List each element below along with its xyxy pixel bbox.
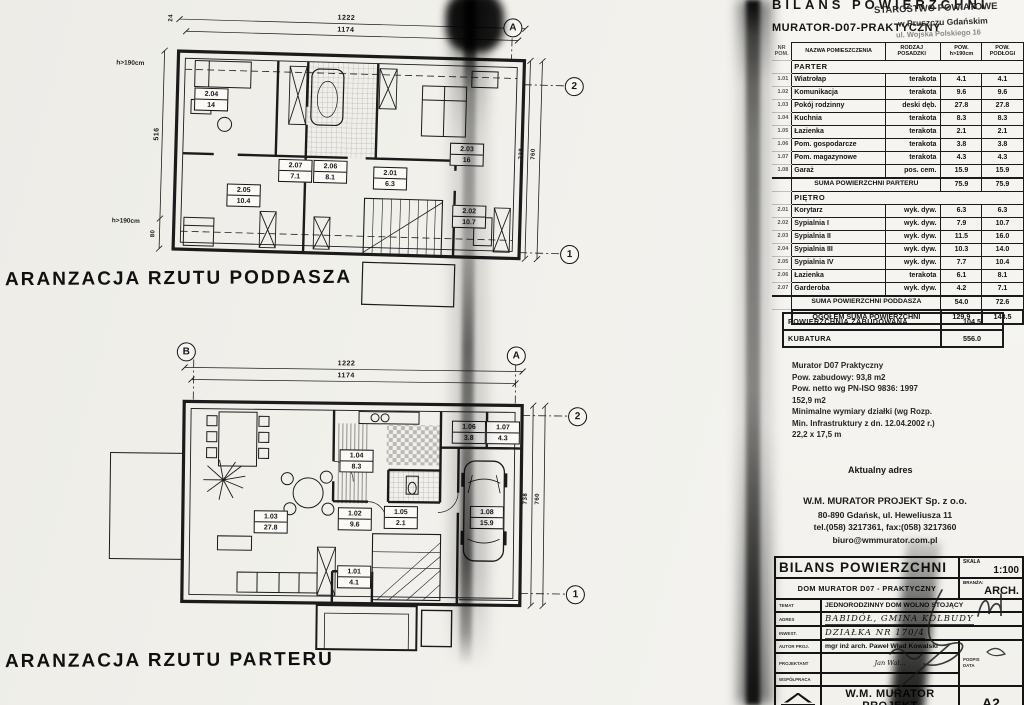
attic-knee-wall-label-bottom: h>190cm [112,217,140,225]
scale-cell: SKALA 1:100 [959,557,1023,578]
table-row: 1.04Kuchniaterakota8.38.3 [772,112,1023,125]
table-row: 2.04Sypialnia IIIwyk. dyw.10.314.0 [772,243,1023,256]
company-email: biuro@wmmurator.com.pl [770,534,1000,547]
autor-value: mgr inż arch. Paweł Wład Kowalski [821,640,959,653]
wspolpraca-label: WSPÓŁPRACA [775,673,821,686]
room-label-2-03: 2.03 16 [450,143,485,167]
table-row: 1.03Pokój rodzinnydeski dęb.27.827.8 [772,99,1023,112]
built-area-label: POWIERZCHNIA ZABUDOWANA [783,313,941,330]
project-specs: Murator D07 Praktyczny Pow. zabudowy: 93… [792,360,935,441]
attic-dim-height-right-outer: 760 [530,148,536,160]
spec-line: Pow. netto wg PN-ISO 9836: 1997 [792,383,935,395]
autor-label: AUTOR PROJ. [775,640,821,653]
titleblock-row-temat: TEMAT JEDNORODZINNY DOM WOLNO STOJĄCY [775,599,1023,612]
office-stamp-line2: w Pruszczu Gdańskim [898,15,988,28]
col-header-pow1: POW. h>190cm [941,43,982,61]
discipline-cell: BRANŻA: ARCH. [959,578,1023,599]
ground-dim-outer-width: 1222 [338,360,356,367]
signature-box: PODPIS DATA [959,640,1023,686]
room-label-1-04: 1.04 8.3 [339,449,373,472]
table-row: 1.08Garażpos. cem.15.915.9 [772,164,1023,178]
ground-grid-marker-2: 2 [568,407,587,426]
titleblock-row-project: DOM MURATOR D07 - PRAKTYCZNY BRANŻA: ARC… [775,578,1023,599]
suma-poddasze-row: SUMA POWIERZCHNI PODDASZA 54.0 72.6 [772,296,1023,310]
table-row: 2.07Garderobawyk. dyw.4.27.1 [772,282,1023,296]
company-cell: W.M. MURATOR PROJEKT Sp. z o.o. [821,686,959,705]
table-header-row: NR POM. NAZWA POMIESZCZENIA RODZAJ POSAD… [772,43,1023,61]
table-row: 1.02Komunikacjaterakota9.69.6 [772,86,1023,99]
attic-dim-height-right-inner: 738 [518,148,524,160]
spec-line: Min. Infrastruktury z dn. 12.04.2002 r.) [792,418,935,430]
col-header-pow2: POW. PODŁOGI [982,43,1023,61]
attic-dim-outer-width: 1222 [338,14,356,21]
table-row: 1.06Pom. gospodarczeterakota3.83.8 [772,138,1023,151]
ground-grid-marker-B: B [177,342,196,361]
spec-line: 22,2 x 17,5 m [792,429,935,441]
roof-icon [784,693,812,703]
titleblock-row-inwest: INWEST. DZIAŁKA NR 170/4 [775,626,1023,640]
room-label-1-05: 1.05 2.1 [384,506,418,529]
summary-table: POWIERZCHNIA ZABUDOWANA 104.5 KUBATURA 5… [782,312,1004,348]
room-label-1-06: 1.06 3.8 [452,421,486,444]
spec-line: 152,9 m2 [792,395,935,407]
ground-grid-marker-1: 1 [566,585,585,604]
attic-knee-wall-label-top: h>190cm [116,59,144,67]
area-balance-panel: BILANS POWIERZCHNI MURATOR-D07-PRAKTYCZN… [770,0,1024,705]
attic-dim-height-left2: 80 [150,229,156,237]
ground-dim-height-right-outer: 760 [535,493,541,505]
col-header-nazwa: NAZWA POMIESZCZENIA [792,43,886,61]
col-header-nr: NR POM. [772,43,792,61]
volume-label: KUBATURA [783,330,941,347]
company-name: W.M. MURATOR PROJEKT Sp. z o.o. [770,496,1000,509]
scan-crease-panel-edge [746,0,760,705]
room-label-2-05: 2.05 10.4 [226,183,261,207]
room-label-1-03: 1.03 27.8 [254,510,288,533]
room-label-1-07: 1.07 4.3 [486,421,520,444]
table-row: 1.07Pom. magazynoweterakota4.34.3 [772,151,1023,164]
company-address-block: W.M. MURATOR PROJEKT Sp. z o.o. 80-890 G… [770,496,1000,546]
adres-value: BABIDÓŁ, GMINA KOLBUDY [821,612,1023,626]
ground-floor-plan: 1222 1174 738 760 B A 2 1 1.06 3.8 1.07 … [66,338,610,685]
spec-line: Murator D07 Praktyczny [792,360,935,372]
adres-label: ADRES [775,612,821,626]
volume-row: KUBATURA 556.0 [783,330,1003,347]
volume-value: 556.0 [941,330,1003,347]
titleblock-row-company: murator W.M. MURATOR PROJEKT Sp. z o.o. … [775,686,1023,705]
room-label-2-02: 2.02 10.7 [452,205,487,229]
table-row: 2.05Sypialnia IVwyk. dyw.7.710.4 [772,256,1023,269]
inwest-value: DZIAŁKA NR 170/4 [821,626,1023,640]
table-row: 2.03Sypialnia IIwyk. dyw.11.516.0 [772,230,1023,243]
built-area-row: POWIERZCHNIA ZABUDOWANA 104.5 [783,313,1003,330]
data-label: DATA [963,663,1019,669]
inwest-label: INWEST. [775,626,821,640]
room-label-2-06: 2.06 8.1 [313,160,348,184]
room-label-1-01: 1.01 4.1 [337,565,371,588]
table-row: 2.06Łazienkaterakota6.18.1 [772,269,1023,282]
spec-line: Minimalne wymiary działki (wg Rozp. [792,406,935,418]
table-row: 1.01Wiatrołapterakota4.14.1 [772,73,1023,86]
room-label-1-02: 1.02 9.6 [338,507,372,530]
room-label-2-04: 2.04 14 [194,88,229,112]
suma-parter-row: SUMA POWIERZCHNI PARTERU 75.9 75.9 [772,178,1023,192]
temat-value: JEDNORODZINNY DOM WOLNO STOJĄCY [821,599,1023,612]
section-header-parter: PARTER [772,60,1023,73]
temat-label: TEMAT [775,599,821,612]
projektant-value: Jan Wal... [821,653,959,673]
titleblock-company: W.M. MURATOR PROJEKT [825,688,955,705]
spec-line: Pow. zabudowy: 93,8 m2 [792,372,935,384]
current-address-heading: Aktualny adres [848,465,913,475]
attic-plan-title: ARANZACJA RZUTU PODDASZA [5,267,352,291]
titleblock-row-title: BILANS POWIERZCHNI SKALA 1:100 [775,557,1023,578]
sheet-format: A2 [959,686,1023,705]
wspolpraca-value [821,673,959,686]
titleblock-row-autor: AUTOR PROJ. mgr inż arch. Paweł Wład Kow… [775,640,1023,653]
office-stamp-line3: ul. Wojska Polskiego 16 [896,28,981,40]
table-row: 2.01Korytarzwyk. dyw.6.36.3 [772,204,1023,217]
ground-plan-title: ARANZACJA RZUTU PARTERU [5,649,334,673]
scan-crease-panel-halo [738,0,772,705]
section-header-pietro: PIĘTRO [772,191,1023,204]
projektant-label: PROJEKTANT [775,653,821,673]
company-phone: tel.(058) 3217361, fax:(058) 3217360 [770,521,1000,534]
attic-dim-inner-width: 1174 [337,26,354,33]
room-label-2-07: 2.07 7.1 [278,159,313,183]
murator-logo: murator [775,686,821,705]
table-row: 1.05Łazienkaterakota2.12.1 [772,125,1023,138]
scale-value: 1:100 [963,565,1019,576]
ground-dim-height-right-inner: 738 [523,493,529,505]
scanned-blueprint-sheet: 1222 1174 24 516 80 738 760 h>190cm h>19… [0,0,1024,705]
room-label-2-01: 2.01 6.3 [373,167,408,191]
ground-dim-inner-width: 1174 [338,372,355,379]
project-name: DOM MURATOR D07 - PRAKTYCZNY [775,578,959,599]
built-area-value: 104.5 [941,313,1003,330]
area-table: NR POM. NAZWA POMIESZCZENIA RODZAJ POSAD… [772,42,1024,325]
table-row: 2.02Sypialnia Iwyk. dyw.7.910.7 [772,217,1023,230]
col-header-rodzaj: RODZAJ POSADZKI [885,43,940,61]
attic-dim-tick: 24 [168,14,174,22]
company-street: 80-890 Gdańsk, ul. Heweliusza 11 [770,509,1000,522]
ground-grid-marker-A: A [507,346,526,365]
room-label-1-08: 1.08 15.9 [470,506,504,529]
titleblock-title: BILANS POWIERZCHNI [775,557,959,578]
titleblock-row-adres: ADRES BABIDÓŁ, GMINA KOLBUDY [775,612,1023,626]
discipline-value: ARCH. [963,585,1019,597]
title-block: BILANS POWIERZCHNI SKALA 1:100 DOM MURAT… [774,556,1024,705]
attic-dim-height-left: 516 [153,127,160,140]
